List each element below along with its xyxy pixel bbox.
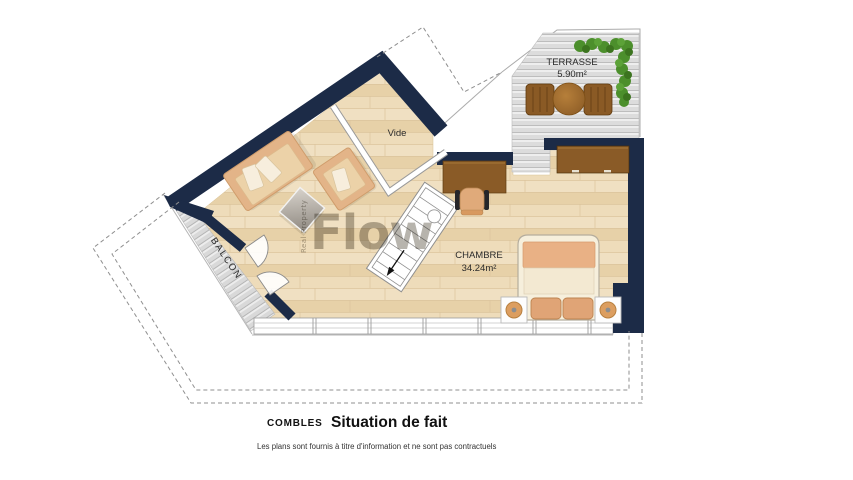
caption-level: COMBLES [267,418,323,429]
terrace-chair-right [584,84,612,115]
terrace-chair-left [526,84,554,115]
pillow-right [563,298,593,319]
floor-plan-svg: Flow Real Property TERRASSE 5.90m² Vide … [0,0,853,480]
vide-label: Vide [388,128,407,139]
caption-title: Situation de fait [331,414,447,431]
watermark-brand: Flow [310,205,433,261]
dresser [557,146,629,173]
caption-disclaimer: Les plans sont fournis à titre d'informa… [257,442,497,451]
nightstand-right [595,297,621,323]
bed [518,235,599,320]
terrasse-label: TERRASSE [546,57,597,68]
nightstand-left [501,297,527,323]
chambre-area: 34.24m² [462,263,497,274]
terrasse-area: 5.90m² [557,69,587,80]
watermark: Flow Real Property [300,200,433,261]
chambre-label: CHAMBRE [455,250,503,261]
pillow-left [531,298,561,319]
terrace-table [553,83,585,115]
caption-block: COMBLES Situation de fait Les plans sont… [257,414,497,451]
floor-plan-canvas: Flow Real Property TERRASSE 5.90m² Vide … [0,0,853,480]
watermark-tagline: Real Property [300,200,308,253]
